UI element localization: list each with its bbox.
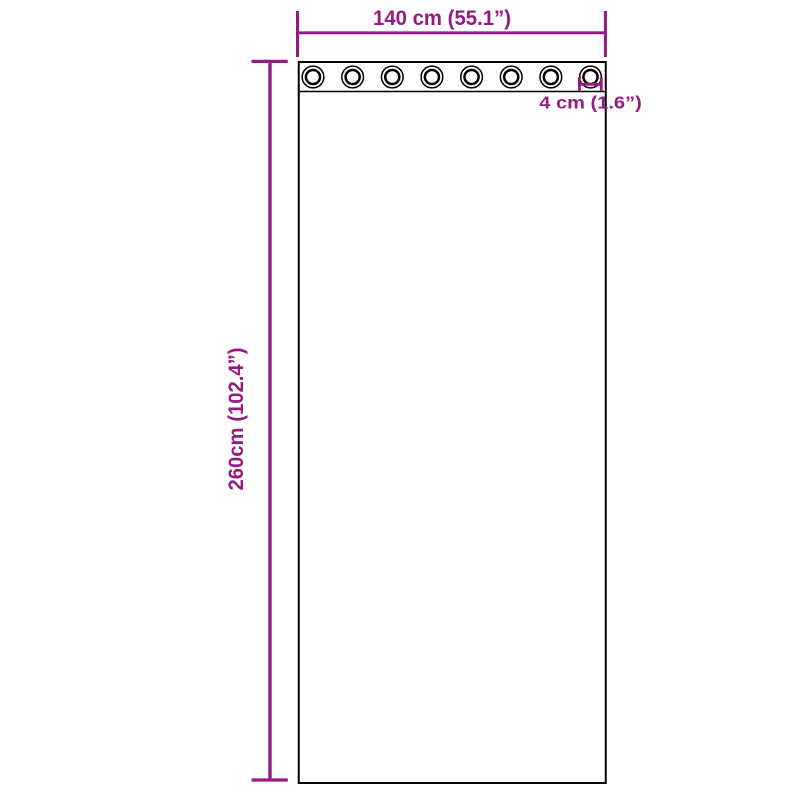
svg-text:4 cm (1.6”): 4 cm (1.6”) xyxy=(539,93,642,113)
svg-text:260cm (102.4”): 260cm (102.4”) xyxy=(224,348,248,491)
svg-text:140 cm (55.1”): 140 cm (55.1”) xyxy=(373,6,511,30)
